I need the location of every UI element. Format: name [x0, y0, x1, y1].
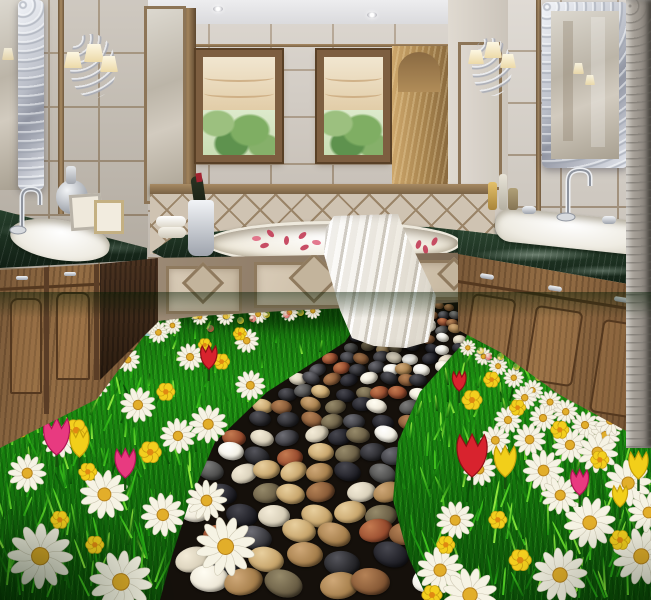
reflected-sconce [573, 63, 584, 74]
recessed-light-icon [213, 6, 223, 12]
faucet-handle [522, 206, 536, 214]
ice-bucket [188, 200, 214, 256]
flower-bud [207, 325, 214, 332]
tulip-flower-yellow [492, 445, 518, 491]
flower-bud [485, 353, 492, 360]
daisy-flower [121, 388, 155, 422]
recessed-light-icon [367, 12, 377, 18]
left-mirror-frame [18, 0, 44, 190]
daisy-flower [9, 525, 71, 587]
door-panel [56, 292, 90, 380]
corner-mirror-panel [144, 6, 186, 204]
daisy-flower [197, 518, 254, 575]
flower-bud [249, 315, 256, 322]
window-right-glass-foliage [324, 110, 383, 155]
daisy-flower [444, 569, 496, 600]
faucet-handle [602, 216, 616, 224]
daisy-flower [190, 406, 226, 442]
tulip-flower-yellow [611, 485, 629, 521]
left-mirror-glass [0, 0, 20, 190]
corner-mirror-glass [147, 9, 183, 201]
daisy-flower [9, 455, 45, 491]
right-mirror-glass [551, 11, 619, 159]
buttercup-flower [49, 509, 71, 531]
folded-towel [156, 216, 186, 227]
tulip-flower-pink [569, 469, 590, 509]
buttercup-flower [435, 534, 457, 556]
stone-pilaster [626, 0, 651, 448]
drawer-handle [480, 273, 495, 280]
tulip-flower-yellow [68, 429, 91, 471]
drawer-handle [548, 285, 563, 292]
cabinet-stile [94, 260, 99, 380]
buttercup-flower [155, 381, 177, 403]
niche-arch [398, 52, 440, 92]
window-left-glass-foliage [203, 110, 275, 155]
right-faucet-icon [548, 160, 600, 222]
shade-fold [325, 73, 382, 82]
daisy-flower [629, 493, 651, 532]
daisy-flower [437, 502, 473, 538]
toiletry-bottle [499, 174, 507, 210]
buttercup-flower [84, 534, 106, 556]
buttercup-flower [137, 439, 163, 465]
frame-carving [18, 0, 44, 190]
window-right [317, 50, 390, 162]
left-faucet-icon [6, 180, 52, 236]
folded-towel [158, 227, 186, 238]
buttercup-flower [487, 509, 509, 531]
rose-petal [252, 236, 261, 241]
daisy-flower [534, 549, 586, 600]
buttercup-flower [420, 583, 444, 600]
tulip-flower-red [199, 345, 219, 383]
toiletry-bottle [488, 182, 497, 210]
picture-frame [94, 200, 124, 234]
buttercup-flower [508, 398, 527, 417]
wine-bottle-foil [195, 173, 202, 183]
tulip-flower-yellow [627, 451, 650, 493]
left-ornate-mirror [0, 0, 44, 190]
right-wall-trim [536, 0, 541, 232]
daisy-flower [91, 552, 151, 600]
door-panel [10, 298, 42, 394]
right-ornate-mirror [542, 2, 628, 168]
buttercup-flower [507, 547, 533, 573]
vase-neck [66, 166, 76, 184]
shade-fold [325, 89, 382, 98]
drawer-handle [64, 272, 76, 276]
flower-bud [283, 311, 290, 318]
cabinet-stile [44, 264, 49, 414]
tulip-flower-pink [113, 448, 138, 492]
toiletry-bottle [508, 188, 518, 210]
window-left [196, 50, 282, 162]
buttercup-flower [232, 326, 248, 342]
daisy-flower [187, 481, 226, 520]
daisy-flower [460, 340, 476, 356]
drawer-handle [16, 276, 28, 280]
buttercup-flower [608, 528, 632, 552]
tulip-flower-red [451, 371, 467, 405]
reflection-stripe [563, 21, 573, 141]
flower-bud [477, 347, 484, 354]
flower-bud [237, 317, 244, 324]
roman-shade-left [203, 57, 275, 113]
daisy-flower [161, 419, 195, 453]
shade-fold [204, 89, 273, 98]
shade-fold [204, 73, 273, 82]
buttercup-flower [549, 419, 571, 441]
daisy-flower [236, 371, 265, 400]
buttercup-flower [482, 370, 501, 389]
roman-shade-right [324, 57, 383, 113]
tulip-flower-red [454, 433, 490, 491]
bathroom-3d-floor-photo [0, 0, 651, 600]
daisy-flower [142, 494, 184, 536]
door-panel [524, 305, 583, 388]
buttercup-flower [589, 449, 611, 471]
